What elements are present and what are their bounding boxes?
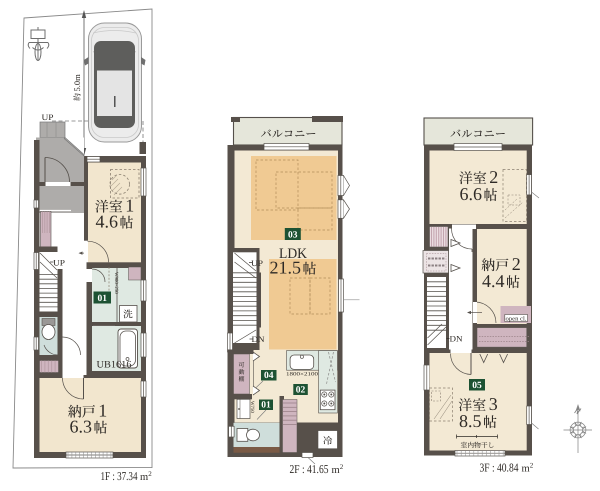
svg-text:2: 2 (489, 167, 498, 187)
svg-text:DN: DN (450, 334, 463, 344)
svg-text:6.6: 6.6 (460, 184, 483, 204)
svg-text:5.0m: 5.0m (72, 74, 82, 92)
svg-text:UP: UP (53, 258, 65, 268)
svg-text:2: 2 (512, 254, 521, 274)
svg-text:02: 02 (296, 386, 306, 396)
svg-text:4.4: 4.4 (482, 271, 505, 291)
svg-text:1: 1 (98, 401, 107, 421)
svg-text:3F : 40.84: 3F : 40.84 (480, 461, 519, 475)
svg-text:2: 2 (340, 463, 344, 471)
svg-text:04: 04 (264, 371, 274, 381)
svg-text:21.5: 21.5 (270, 258, 302, 278)
svg-text:2: 2 (530, 462, 534, 470)
svg-text:05: 05 (472, 381, 482, 391)
svg-text:3: 3 (489, 394, 498, 414)
svg-text:W750: W750 (249, 401, 255, 413)
svg-text:1800×2100: 1800×2100 (286, 371, 319, 377)
svg-text:W900×250: W900×250 (113, 272, 119, 294)
svg-text:m: m (140, 472, 148, 483)
svg-text:UB1616: UB1616 (97, 360, 132, 371)
svg-text:4.6: 4.6 (96, 212, 119, 232)
svg-text:DN: DN (252, 334, 265, 344)
svg-text:2F : 41.65: 2F : 41.65 (290, 462, 329, 476)
svg-text:01: 01 (98, 294, 108, 304)
svg-text:UP: UP (42, 112, 54, 122)
svg-text:6.3: 6.3 (70, 417, 93, 437)
svg-text:m: m (522, 464, 530, 475)
svg-text:03: 03 (288, 231, 298, 241)
svg-text:1F : 37.34: 1F : 37.34 (101, 469, 138, 483)
svg-text:UP: UP (251, 258, 263, 268)
svg-text:8.5: 8.5 (459, 411, 482, 431)
svg-text:m: m (332, 465, 340, 476)
svg-text:2: 2 (148, 470, 152, 478)
svg-text:open cl.: open cl. (506, 315, 527, 322)
svg-text:01: 01 (261, 401, 271, 411)
svg-text:1: 1 (125, 196, 134, 216)
